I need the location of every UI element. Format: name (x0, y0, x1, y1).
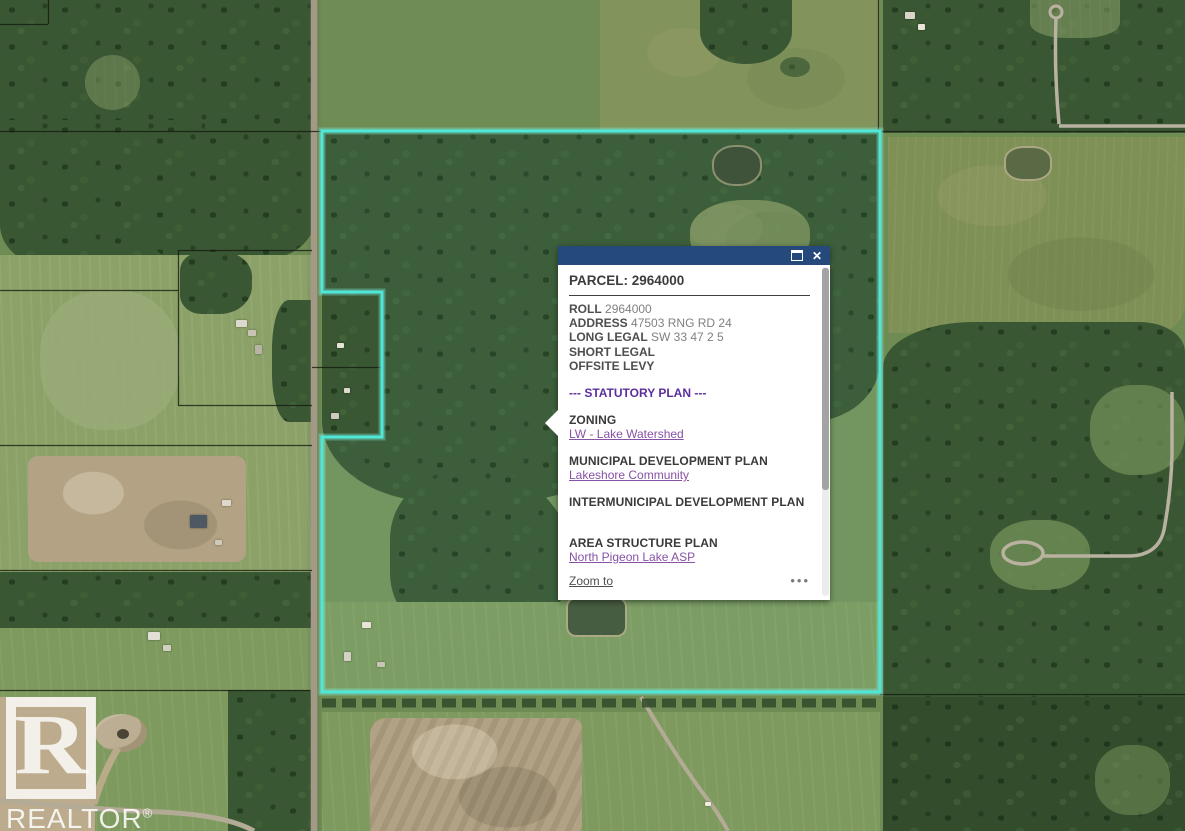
field-row: ADDRESS 47503 RNG RD 24 (569, 316, 810, 330)
statutory-plan-divider: --- STATUTORY PLAN --- (569, 386, 810, 400)
popup-header: ✕ (558, 246, 830, 265)
field-row: LONG LEGAL SW 33 47 2 5 (569, 330, 810, 344)
section-heading: MUNICIPAL DEVELOPMENT PLAN (569, 454, 810, 468)
municipal-development-plan-link[interactable]: Lakeshore Community (569, 468, 810, 482)
section-heading: AREA STRUCTURE PLAN (569, 536, 810, 550)
field-row: SHORT LEGAL (569, 345, 810, 359)
building (331, 413, 339, 419)
building (377, 662, 385, 667)
building (337, 343, 344, 348)
road (641, 697, 728, 831)
popup-title: PARCEL: 2964000 (569, 273, 810, 289)
realtor-label: REALTOR® (6, 803, 153, 831)
building (255, 345, 262, 354)
popup-divider (569, 295, 810, 296)
cul-de-sac (1050, 6, 1062, 18)
building (190, 515, 207, 528)
section-heading: ZONING (569, 413, 810, 427)
area-structure-plan-link[interactable]: North Pigeon Lake ASP (569, 550, 810, 564)
building (215, 540, 222, 545)
driveway-loop (1003, 542, 1043, 564)
zoning-link[interactable]: LW - Lake Watershed (569, 427, 810, 441)
field-row: ROLL 2964000 (569, 302, 810, 316)
building (918, 24, 925, 30)
section-heading: INTERMUNICIPAL DEVELOPMENT PLAN (569, 495, 810, 509)
vehicle (705, 802, 711, 806)
map-viewport[interactable]: R REALTOR® ✕ PARCEL: 2964000 ROLL 296400… (0, 0, 1185, 831)
building (905, 12, 915, 19)
building (148, 632, 160, 640)
field-row: OFFSITE LEVY (569, 359, 810, 373)
section-municipal-development-plan: MUNICIPAL DEVELOPMENT PLAN Lakeshore Com… (569, 454, 810, 482)
building (248, 330, 256, 336)
building (344, 388, 350, 393)
building (344, 652, 351, 661)
close-icon[interactable]: ✕ (812, 251, 822, 261)
more-options-icon[interactable]: ••• (790, 577, 810, 585)
popup-scrollbar[interactable] (822, 267, 829, 596)
realtor-watermark: R REALTOR® (6, 697, 153, 831)
popup-footer: Zoom to ••• (558, 568, 820, 600)
intermunicipal-development-plan-link (569, 509, 810, 523)
zoom-to-link[interactable]: Zoom to (569, 574, 613, 588)
driveway (1042, 392, 1172, 556)
realtor-logo-letter: R (14, 702, 87, 788)
building (362, 622, 371, 628)
building (222, 500, 231, 506)
maximize-icon[interactable] (791, 250, 803, 261)
section-intermunicipal-development-plan: INTERMUNICIPAL DEVELOPMENT PLAN (569, 495, 810, 523)
popup-leader-arrow (545, 410, 558, 436)
driveway (1055, 18, 1185, 126)
section-zoning: ZONING LW - Lake Watershed (569, 413, 810, 441)
popup-body: PARCEL: 2964000 ROLL 2964000 ADDRESS 475… (558, 265, 830, 600)
scrollbar-thumb[interactable] (822, 268, 829, 490)
parcel-popup: ✕ PARCEL: 2964000 ROLL 2964000 ADDRESS 4… (558, 246, 830, 600)
building (236, 320, 247, 327)
section-area-structure-plan: AREA STRUCTURE PLAN North Pigeon Lake AS… (569, 536, 810, 564)
building (163, 645, 171, 651)
realtor-logo: R (6, 697, 96, 799)
